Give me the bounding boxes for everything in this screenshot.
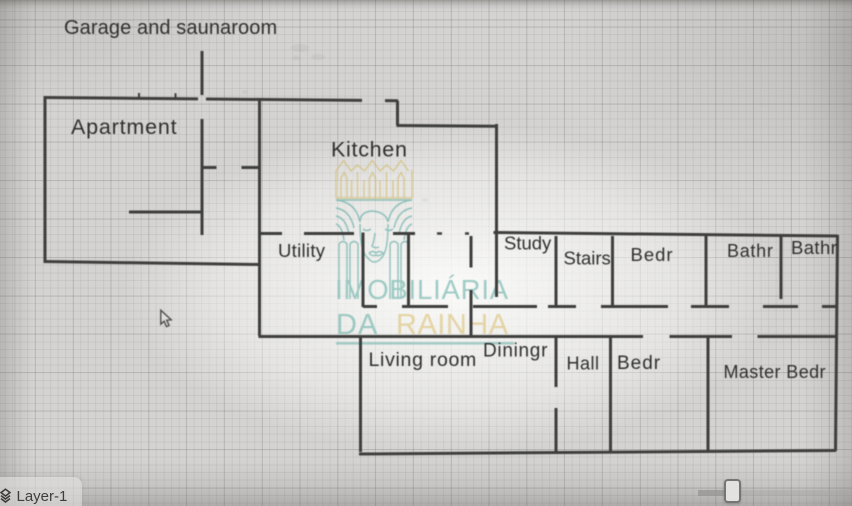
- svg-text:Diningr: Diningr: [483, 341, 548, 362]
- svg-text:Stairs: Stairs: [564, 248, 611, 269]
- svg-text:Bedr: Bedr: [617, 353, 661, 374]
- svg-text:Bathr: Bathr: [727, 241, 774, 261]
- svg-text:IMOBILIÁRIA: IMOBILIÁRIA: [335, 274, 509, 305]
- svg-text:Garage and saunaroom: Garage and saunaroom: [64, 17, 277, 39]
- svg-text:Hall: Hall: [567, 354, 600, 374]
- svg-text:Bedr: Bedr: [631, 244, 674, 265]
- svg-text:Bathr: Bathr: [791, 237, 837, 258]
- svg-text:Living room: Living room: [369, 349, 478, 371]
- svg-text:Apartment: Apartment: [71, 115, 177, 139]
- svg-text:Kitchen: Kitchen: [331, 138, 408, 162]
- svg-text:Utility: Utility: [278, 240, 326, 261]
- svg-text:Master Bedr: Master Bedr: [724, 362, 826, 382]
- svg-text:Study: Study: [504, 233, 552, 254]
